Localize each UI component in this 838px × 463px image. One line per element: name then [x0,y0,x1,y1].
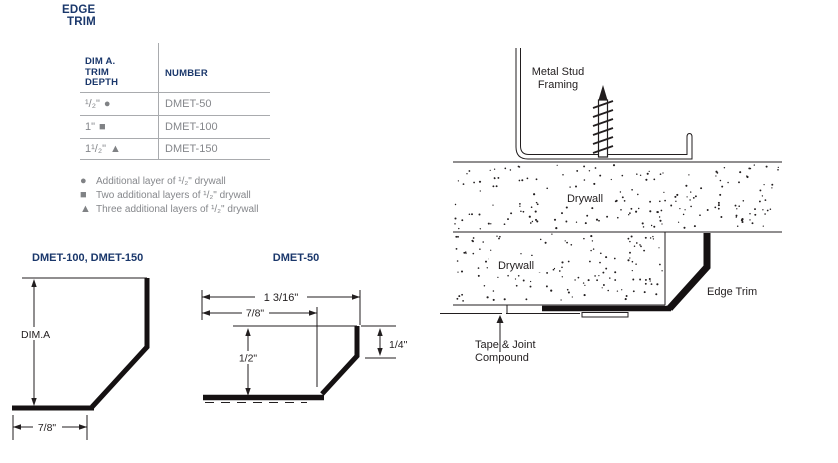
edge-trim-shape [542,233,707,309]
triangle-marker-icon: ▲ [80,203,96,215]
drywall-texture [455,233,662,301]
drawing-title: DMET-100, DMET-150 [32,252,143,264]
dim-7-8-label: 7/8" [246,308,265,320]
dim-7-8-label: 7/8" [38,422,57,434]
profile-drawing-dmet100-150: DMET-100, DMET-150 DIM.A 7/8" [10,248,165,460]
dim-1-4-dimension: 1/4" [361,326,408,358]
dim-a-label: DIM.A [21,329,50,341]
marker-legend: ● Additional layer of ¹/₂" drywall ■ Two… [80,174,259,216]
profile-drawing-dmet50: DMET-50 1 3/16" 7/8" [195,248,425,460]
installation-detail-drawing: Drywall Drywall Metal Stud Frami [440,30,838,375]
trim-profile-shape [203,326,357,403]
table-row: ¹/₂"● DMET-50 [80,92,270,115]
legend-text: Three additional layers of ¹/₂" drywall [96,204,259,215]
bottom-dimension-7-8: 7/8" [13,415,87,440]
tape-joint-label-line1: Tape & Joint [475,339,536,351]
drywall-texture [454,164,779,229]
page-title-line2: TRIM [67,16,96,28]
page-title: EDGE TRIM [62,4,96,28]
drywall-layer-bottom: Drywall [453,232,665,305]
legend-text: Two additional layers of ¹/₂" drywall [96,190,251,201]
dim-1-2-dimension: 1/2" [235,328,261,396]
depth-value: 1¹/₂" [85,143,106,155]
table-row: 1"■ DMET-100 [80,115,270,138]
legend-item: ● Additional layer of ¹/₂" drywall [80,174,259,188]
dim-1-3-16-label: 1 3/16" [264,292,299,304]
product-number: DMET-50 [158,98,270,110]
col-header-number: NUMBER [158,43,270,92]
col-header-trim-depth: DIM A. TRIM DEPTH [80,43,158,92]
catalog-page: EDGE TRIM DIM A. TRIM DEPTH NUMBER ¹/₂"●… [0,0,838,463]
table-column-divider [158,43,159,159]
product-table: DIM A. TRIM DEPTH NUMBER ¹/₂"● DMET-50 1… [80,43,270,160]
drywall-label: Drywall [498,260,534,272]
table-row: 1¹/₂"▲ DMET-150 [80,138,270,160]
depth-value: ¹/₂" [85,98,100,110]
square-marker-icon: ■ [99,121,106,133]
drawing-title: DMET-50 [273,252,319,264]
triangle-marker-icon: ▲ [110,143,121,155]
dim-1-2-label: 1/2" [239,353,258,365]
legend-item: ■ Two additional layers of ¹/₂" drywall [80,188,259,202]
depth-value: 1" [85,121,95,133]
square-marker-icon: ■ [80,189,96,201]
metal-stud-framing-label-line2: Framing [538,79,578,91]
dimension-lines: 1 3/16" 7/8" [202,290,360,387]
screw-shape [593,85,613,157]
drywall-label: Drywall [567,193,603,205]
product-number: DMET-150 [158,143,270,155]
legend-text: Additional layer of ¹/₂" drywall [96,176,226,187]
legend-item: ▲ Three additional layers of ¹/₂" drywal… [80,202,259,216]
product-number: DMET-100 [158,121,270,133]
trim-profile-shape [12,278,147,408]
table-header-row: DIM A. TRIM DEPTH NUMBER [80,43,270,92]
page-title-line1: EDGE [62,4,96,16]
dim-1-4-label: 1/4" [389,339,408,351]
drywall-layer-top: Drywall [453,162,782,232]
metal-stud-framing-label-line1: Metal Stud [532,66,585,78]
tape-joint-label-line2: Compound [475,352,529,364]
circle-marker-icon: ● [104,98,111,110]
dim-a-dimension: DIM.A [19,279,55,406]
circle-marker-icon: ● [80,175,96,187]
edge-trim-label: Edge Trim [707,286,757,298]
